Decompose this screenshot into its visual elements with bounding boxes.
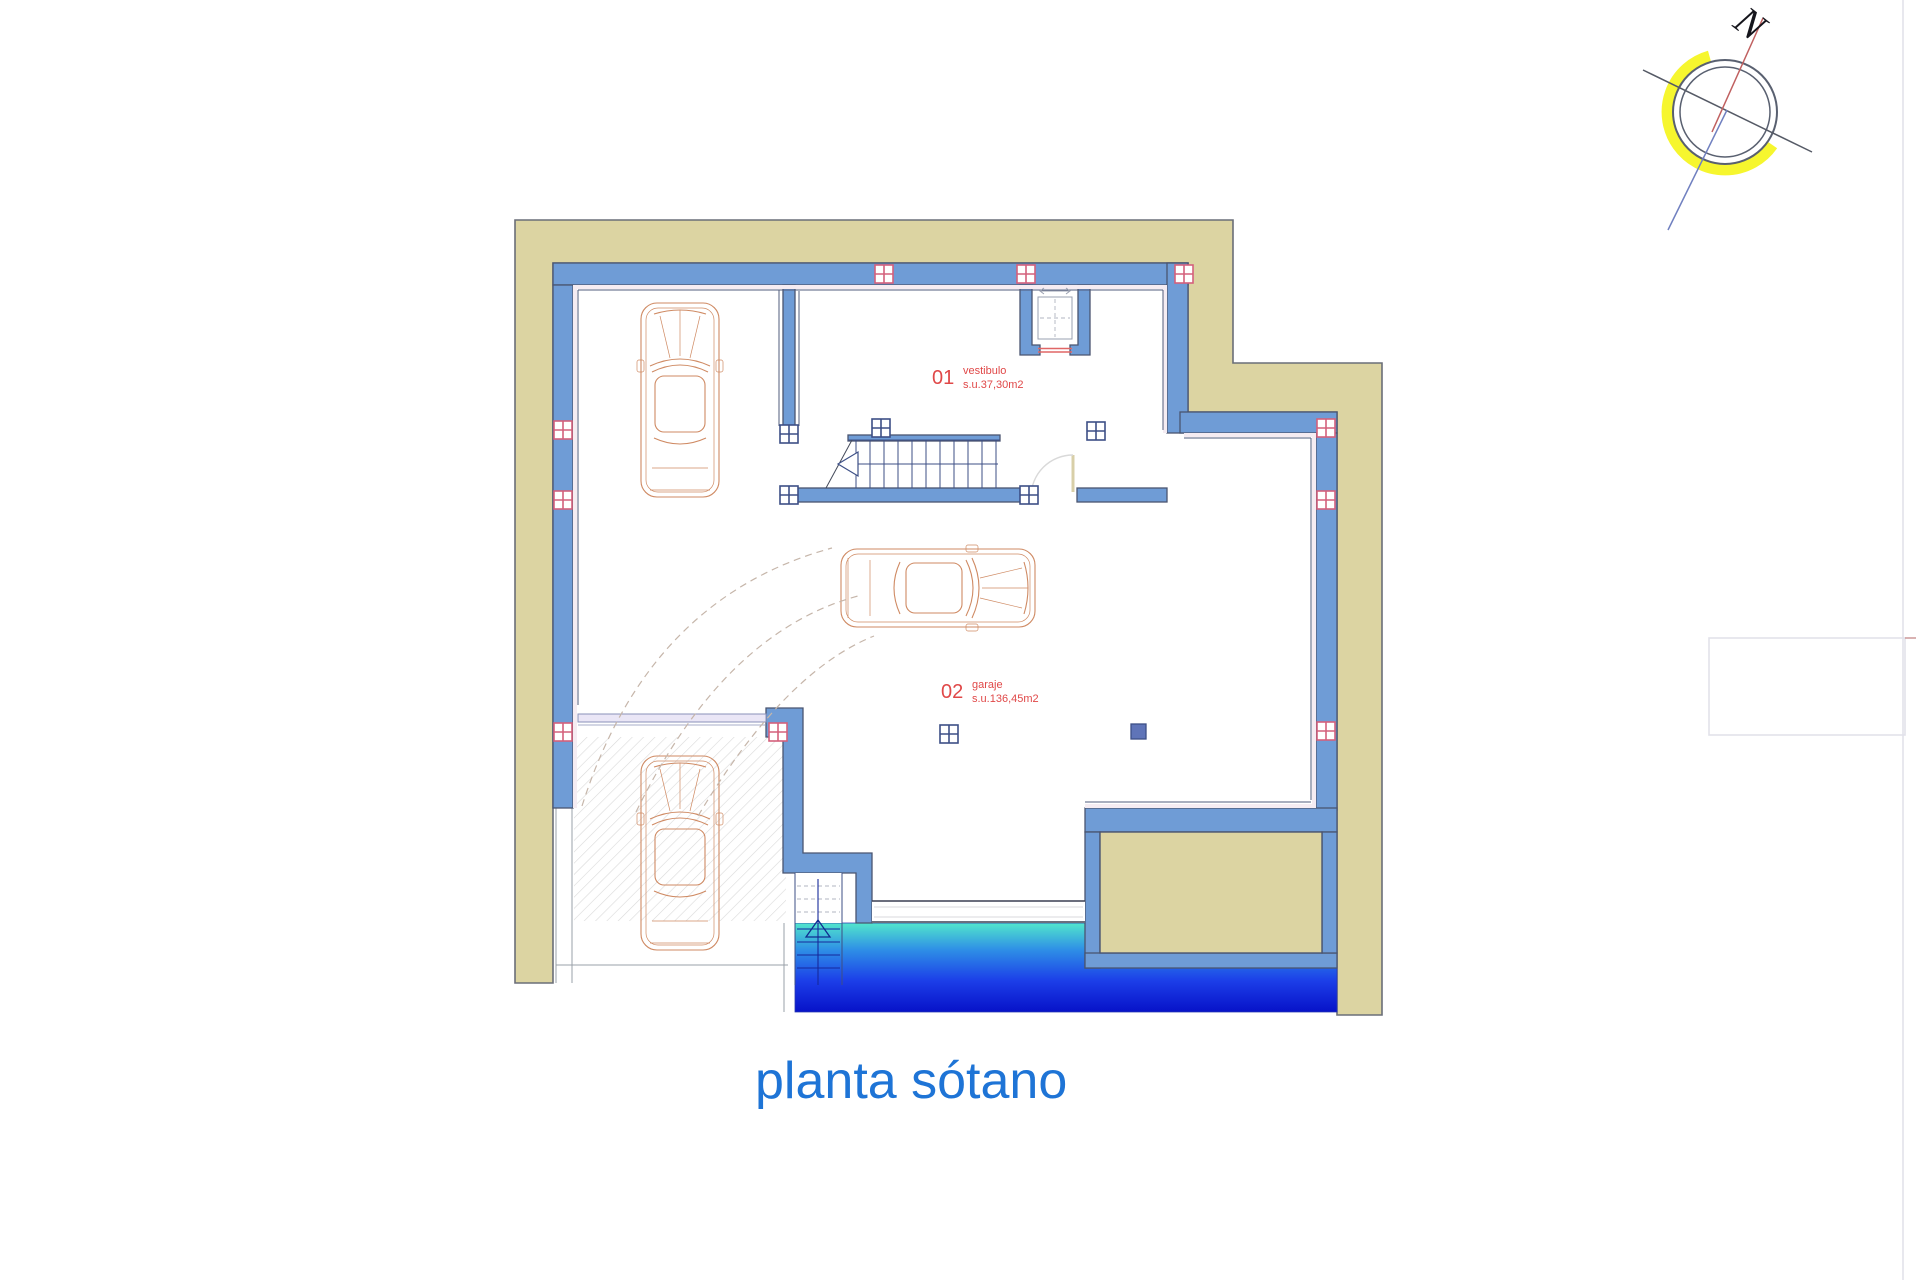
wall-joint-marker [875,265,893,283]
garage-door [578,714,766,725]
wall-vestibule-right [1167,263,1188,433]
wall-joint-marker [1017,265,1035,283]
exterior-pool-steps [795,873,842,985]
compass-rose: N [1643,0,1812,230]
car-top-view [841,545,1035,631]
wall-joint-marker [554,491,572,509]
wall-joint-marker [1317,491,1335,509]
wall-joint-marker [769,723,787,741]
column-marker [1087,422,1105,440]
wall-joint-marker [1317,419,1335,437]
stripe-vest-right [1163,285,1167,433]
plant-room-slab [1100,832,1322,953]
elevator-jamb-left [1020,285,1040,355]
wall-partition [783,285,795,428]
elevator-jamb-right [1070,285,1090,355]
stripe-plant-top [1085,804,1312,808]
room-number: 01 [932,367,954,389]
elevator [1038,288,1072,352]
room-number: 02 [941,681,963,703]
garage-door-lintel [578,714,766,722]
driveway [556,737,788,1012]
wall-end-marker [780,486,798,504]
wall-joint-marker [1175,265,1193,283]
floor-plan-drawing: 01 vestibulo s.u.37,30m2 02 garaje s.u.1… [0,0,1920,1280]
wall-plant-room-left [1085,832,1100,968]
wall-end-marker [1020,486,1038,504]
wall-joint-marker [554,421,572,439]
car-garage-bay [637,303,723,497]
column-marker [940,725,958,743]
room-name: garaje [972,679,1003,691]
stair-direction-arrow [838,452,858,476]
wall-end-marker [780,425,798,443]
car-maneuvering [841,545,1035,631]
stripe-east-right [1312,437,1316,808]
sheet-border [1709,0,1916,1280]
wall-plant-room-right [1322,832,1337,953]
wall-door-south [1077,488,1167,502]
plan-title: planta sótano [755,1052,1067,1110]
wall-plant-room-bottom [1085,953,1337,968]
glass-band [872,901,1085,923]
wall-stair-south [795,488,1022,502]
room-area: s.u.136,45m2 [972,693,1039,705]
room-name: vestibulo [963,365,1006,377]
stripe-top [573,285,1167,289]
pool-glass-wall [872,901,1085,923]
stripe-east-top [1184,433,1316,437]
car-top-view [637,303,723,497]
wall-end-marker [872,419,890,437]
north-label: N [1725,0,1776,51]
wall-east-right [1316,433,1337,810]
wall-joint-marker [1317,722,1335,740]
column-solid [1131,724,1146,739]
room-labels: 01 vestibulo s.u.37,30m2 02 garaje s.u.1… [932,365,1039,705]
compass-outer-circle [1673,60,1777,164]
wall-plant-room-top [1085,808,1337,832]
drawing-sheet: 01 vestibulo s.u.37,30m2 02 garaje s.u.1… [0,0,1920,1280]
wall-joint-marker [554,723,572,741]
interior-staircase [826,440,1000,488]
stripe-left [573,285,577,808]
title-block-frame [1709,638,1905,735]
wall-east-top [1180,412,1337,433]
room-area: s.u.37,30m2 [963,379,1024,391]
wall-top [553,263,1188,285]
